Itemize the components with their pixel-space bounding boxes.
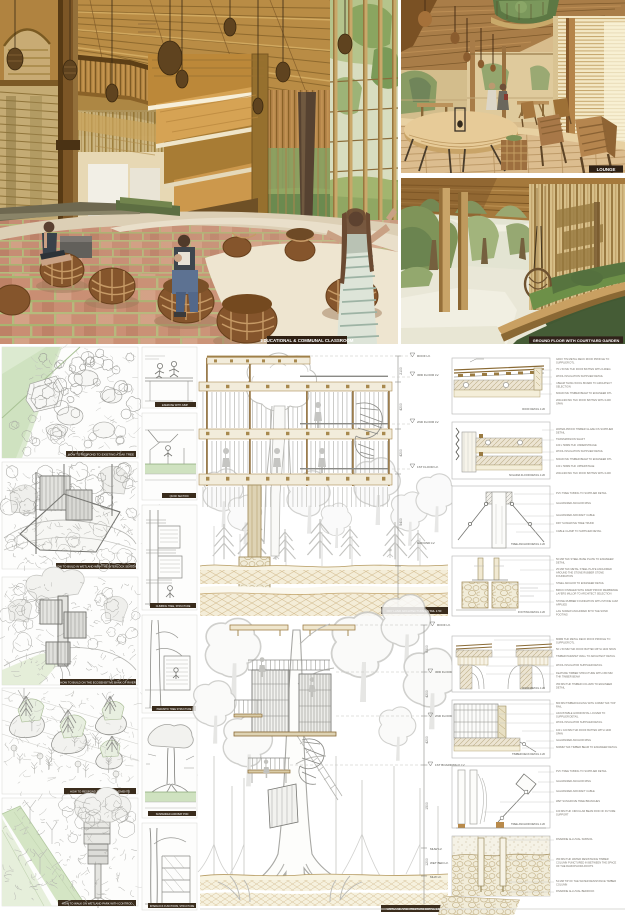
svg-text:TIMBER PARAPET WALL TO ARCHITE: TIMBER PARAPET WALL TO ARCHITECT DETAIL	[556, 654, 616, 658]
svg-text:600x60 MU TIMBER BEAM TO ENGIN: 600x60 MU TIMBER BEAM TO ENGINEER DTL	[556, 457, 612, 461]
svg-text:DETAIL: DETAIL	[556, 560, 565, 564]
svg-text:WOOL INSULATION SUPPLIER DETAI: WOOL INSULATION SUPPLIER DETAIL	[556, 449, 604, 453]
svg-text:25 MM THK METAL STEEL PLATE AN: 25 MM THK METAL STEEL PLATE ANCHORED	[556, 567, 612, 571]
svg-text:GROUND LV.: GROUND LV.	[417, 541, 435, 545]
svg-text:4200: 4200	[399, 403, 403, 411]
svg-text:50 x 50 MM THK ROOF BATTEN WIT: 50 x 50 MM THK ROOF BATTEN WITH 1400 SPA…	[556, 647, 616, 651]
svg-text:PVC TREE TUBING TO SUPPLIER DE: PVC TREE TUBING TO SUPPLIER DETAIL	[556, 769, 607, 773]
svg-text:SUPPLIER DTL: SUPPLIER DTL	[556, 360, 575, 364]
svg-text:350 MM THK WATER RESISTANCE TI: 350 MM THK WATER RESISTANCE TIMBER	[556, 857, 609, 861]
svg-text:LOUNGE: LOUNGE	[597, 167, 616, 172]
svg-text:200x1400 MU THK ROOF BATTEN WI: 200x1400 MU THK ROOF BATTEN WITH 1400	[556, 471, 611, 475]
svg-text:EDUCATIONAL & COMMUNAL CLASSRO: EDUCATIONAL & COMMUNAL CLASSROOM	[261, 338, 354, 343]
svg-text:LAG SCREW ANCHORED INTO THE SO: LAG SCREW ANCHORED INTO THE SOND	[556, 609, 608, 613]
svg-text:STEEL ANCHOR TO ENGINEER DETAI: STEEL ANCHOR TO ENGINEER DETAIL	[556, 581, 605, 585]
svg-text:100 x 100 MM THK ROOF BATTEN W: 100 x 100 MM THK ROOF BATTEN WITH 1400	[556, 728, 612, 732]
svg-text:GALVANIZED AIRCRAFT CABLE: GALVANIZED AIRCRAFT CABLE	[556, 789, 595, 793]
svg-text:GRAY TIN METAL DECK ROOF PROFI: GRAY TIN METAL DECK ROOF PROFILE TO	[556, 357, 609, 361]
svg-text:54 MM TIP OF THE WATER RESISTA: 54 MM TIP OF THE WATER RESISTANCE TIMBER	[556, 879, 616, 883]
svg-text:SPAN: SPAN	[556, 401, 563, 405]
svg-text:FEATURE TIMBER STRUCTURE WITH: FEATURE TIMBER STRUCTURE WITH 450 MM	[556, 671, 613, 675]
svg-text:OF THE RHIZOPHORA ROOTS: OF THE RHIZOPHORA ROOTS	[556, 864, 594, 868]
svg-text:100 x 50MM THK UNDERSTRAGE: 100 x 50MM THK UNDERSTRAGE	[556, 443, 597, 447]
svg-text:FOUNDATION: FOUNDATION	[556, 574, 573, 578]
svg-text:FOOTING DETAIL 1:20: FOOTING DETAIL 1:20	[518, 610, 546, 614]
svg-text:100 x 50MM THK UPPERSTAGE: 100 x 50MM THK UPPERSTAGE	[556, 464, 595, 468]
svg-text:SELECTION: SELECTION	[556, 384, 571, 388]
svg-text:1ST FLOOR LV.: 1ST FLOOR LV.	[417, 465, 439, 469]
svg-text:DRY SUNGROVE TREE TRUNK: DRY SUNGROVE TREE TRUNK	[556, 521, 594, 525]
svg-text:BRICK FINISHED WITH DAMP PROOF: BRICK FINISHED WITH DAMP PROOF MEMBRANE	[556, 588, 618, 592]
svg-text:GALVANIZED AIRCRAFT CABLE: GALVANIZED AIRCRAFT CABLE	[556, 513, 595, 517]
svg-text:STONE RUBBER FOUNDATION WITH S: STONE RUBBER FOUNDATION WITH STONE GUM	[556, 599, 618, 603]
svg-text:GALVANIZED ANCHOR RING: GALVANIZED ANCHOR RING	[556, 738, 591, 742]
svg-text:CABLE CLAMP TO SUPPLIER DETAIL: CABLE CLAMP TO SUPPLIER DETAIL	[556, 529, 602, 533]
svg-text:HOW TO BUILD ON THE ECOSENSITI: HOW TO BUILD ON THE ECOSENSITIVE BANK OF…	[60, 681, 136, 685]
svg-text:MLW LV.: MLW LV.	[430, 875, 442, 879]
svg-text:600x60 MU TIMBER BEAM TO ENGIN: 600x60 MU TIMBER BEAM TO ENGINEER DTL	[556, 391, 612, 395]
svg-text:50 MM THK STEEL BASE PLATE TO: 50 MM THK STEEL BASE PLATE TO ENGINEER	[556, 557, 614, 561]
svg-text:I-BEAM THING WOOL BOARD TO ARC: I-BEAM THING WOOL BOARD TO ARCHITECT	[556, 381, 612, 385]
svg-text:600MM THK TIMBER BEAM TO ENGIN: 600MM THK TIMBER BEAM TO ENGINEER DETAIL	[556, 745, 618, 749]
svg-text:200x1400 MU THK ROOF BATTEN WI: 200x1400 MU THK ROOF BATTEN WITH 1400	[556, 398, 611, 402]
svg-text:ADJUSTABLE HORIZONTAL LOUVER T: ADJUSTABLE HORIZONTAL LOUVER TO	[556, 711, 605, 715]
svg-text:1500: 1500	[425, 802, 429, 810]
svg-text:SUPPORT: SUPPORT	[556, 812, 569, 816]
svg-text:RIVERINE ALLUVIAL BEDROCK: RIVERINE ALLUVIAL BEDROCK	[556, 889, 595, 893]
svg-text:COLUMN PUNCTURED IN BETWEEN TH: COLUMN PUNCTURED IN BETWEEN THE SPACE	[556, 860, 617, 864]
svg-text:APPLIED: APPLIED	[556, 602, 567, 606]
svg-text:2100: 2100	[399, 367, 403, 375]
svg-text:3RD FLOOR LV.: 3RD FLOOR LV.	[417, 373, 439, 377]
svg-text:CLIMBING TREE, STRUCTURE: CLIMBING TREE, STRUCTURE	[156, 605, 191, 608]
svg-text:350 MM THK TIMBER COLUMN TO EN: 350 MM THK TIMBER COLUMN TO ENGINEER	[556, 682, 612, 686]
svg-text:HOW TO BUILD IN WETLAND WITH T: HOW TO BUILD IN WETLAND WITH THE INTERLO…	[55, 565, 137, 569]
svg-text:4200: 4200	[399, 449, 403, 457]
svg-text:FOOTING: FOOTING	[556, 612, 568, 616]
svg-text:800 MM TIMBER RAILING WITH 100: 800 MM TIMBER RAILING WITH 100MM THK TOP	[556, 701, 616, 705]
svg-text:LAYERS MILLOR TO ARCHITECT SEL: LAYERS MILLOR TO ARCHITECT SELECTION	[556, 591, 612, 595]
svg-text:1200: 1200	[425, 858, 429, 866]
svg-text:PVC TREE TUBING TO SUPPLIER DE: PVC TREE TUBING TO SUPPLIER DETAIL	[556, 491, 607, 495]
svg-text:ROOF DETAIL 1:20: ROOF DETAIL 1:20	[522, 407, 545, 411]
svg-text:TIMBER DECK DETAIL 1:20: TIMBER DECK DETAIL 1:20	[512, 752, 546, 756]
svg-text:WET SUNGROVE TREE BRANCHES: WET SUNGROVE TREE BRANCHES	[556, 799, 600, 803]
svg-text:DETAIL: DETAIL	[556, 685, 565, 689]
svg-text:INTERLOCK FUNCTIONS, STRUCTURE: INTERLOCK FUNCTIONS, STRUCTURE	[150, 905, 195, 908]
svg-text:QUICK SECTION: QUICK SECTION	[170, 495, 189, 498]
svg-text:TREE ANCHOR DETAIL 1:20: TREE ANCHOR DETAIL 1:20	[511, 542, 546, 546]
svg-text:SUSPENDED ACROBAT POD: SUSPENDED ACROBAT POD	[156, 813, 189, 816]
svg-text:ROOF LV.: ROOF LV.	[417, 354, 431, 358]
svg-text:SPAN: SPAN	[556, 731, 563, 735]
svg-text:WATER-PROOF TIMBER GLAZE F/S S: WATER-PROOF TIMBER GLAZE F/S SUPPLIER	[556, 427, 613, 431]
svg-text:ROOF DETAIL 1:20: ROOF DETAIL 1:20	[522, 686, 545, 690]
svg-text:GALVANIZED ANCHOR RING: GALVANIZED ANCHOR RING	[556, 501, 591, 505]
svg-text:THK TIMBER BEAM: THK TIMBER BEAM	[556, 674, 580, 678]
svg-text:100 MM THK CIRCULAR BEAM ROD O: 100 MM THK CIRCULAR BEAM ROD OF FUTURE	[556, 809, 616, 813]
svg-text:4200: 4200	[425, 690, 429, 698]
svg-text:GALVANIZED ANCHOR RING: GALVANIZED ANCHOR RING	[556, 779, 591, 783]
svg-text:SUPPLIER DETAIL: SUPPLIER DETAIL	[556, 714, 579, 718]
svg-text:75 x 50 MU THK ROOF BATTEN WIT: 75 x 50 MU THK ROOF BATTEN WITH 14DEG	[556, 367, 611, 371]
svg-text:6300: 6300	[425, 645, 429, 653]
svg-text:RIVERINE ALLUVIAL SUBSOIL: RIVERINE ALLUVIAL SUBSOIL	[556, 837, 593, 841]
svg-text:80MM THK METAL DECK ROOF PROFI: 80MM THK METAL DECK ROOF PROFILE TO	[556, 637, 610, 641]
svg-text:RAIL: RAIL	[556, 704, 562, 708]
svg-text:AROUND THE STONE RUBBER STONE: AROUND THE STONE RUBBER STONE	[556, 570, 604, 574]
svg-text:DETAIL: DETAIL	[556, 430, 565, 434]
svg-text:HOW TO WALK ON WETLAND PARK WI: HOW TO WALK ON WETLAND PARK WITH CONTROL	[62, 902, 132, 906]
svg-text:MHW LV.: MHW LV.	[430, 847, 443, 851]
svg-text:SUPPLIER DTL: SUPPLIER DTL	[556, 640, 575, 644]
svg-text:WOOL INSULATOR SUPPLIER DETAIL: WOOL INSULATOR SUPPLIER DETAIL	[556, 663, 603, 667]
svg-text:EXERCISE WITH JUMP: EXERCISE WITH JUMP	[162, 404, 188, 407]
svg-text:TREE ANCHOR DETAIL 1:20: TREE ANCHOR DETAIL 1:20	[511, 822, 546, 826]
svg-text:WOOL INSULATION SUPPLIER DETAI: WOOL INSULATION SUPPLIER DETAIL	[556, 374, 604, 378]
svg-text:GROUND FLOOR WITH COURTYARD GA: GROUND FLOOR WITH COURTYARD GARDEN	[533, 338, 620, 343]
svg-text:COLUMN: COLUMN	[556, 882, 567, 886]
svg-text:TRANSMISSION SHAFT: TRANSMISSION SHAFT	[556, 437, 585, 441]
svg-text:5400: 5400	[399, 518, 403, 526]
svg-text:WET BED LV.: WET BED LV.	[430, 861, 449, 865]
svg-text:2ND FLOOR LV.: 2ND FLOOR LV.	[417, 420, 439, 424]
svg-text:SOLARIA FLOOR DETAIL 1:20: SOLARIA FLOOR DETAIL 1:20	[509, 473, 546, 477]
svg-text:WOOL INSULATOR SUPPLIER DETAIL: WOOL INSULATOR SUPPLIER DETAIL	[556, 720, 603, 724]
svg-text:ROOF LV.: ROOF LV.	[437, 623, 451, 627]
svg-text:4200: 4200	[425, 736, 429, 744]
svg-text:PARASITIC TREE STRUCTURE: PARASITIC TREE STRUCTURE	[157, 708, 192, 711]
